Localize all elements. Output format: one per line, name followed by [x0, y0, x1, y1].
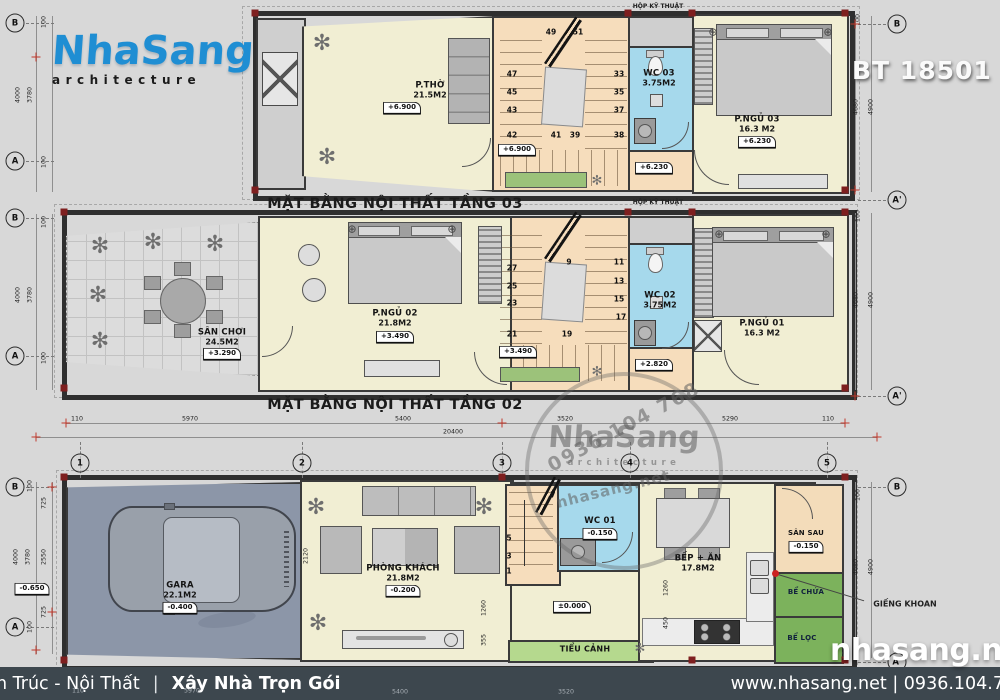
dim-item: 3780 — [27, 287, 34, 303]
sofa-icon — [362, 486, 476, 516]
brand-logo-subtext: architecture — [52, 73, 254, 87]
dashh-item — [26, 23, 54, 24]
dining-table-icon — [656, 498, 730, 548]
stair-landing — [541, 67, 587, 128]
bubble-item: A — [6, 152, 25, 171]
stair-flight-icon — [500, 40, 542, 150]
footer-left-text: n Trúc - Nội Thất — [0, 674, 140, 694]
room-label-wc01: WC 01 — [584, 516, 615, 526]
bubble-item: B — [888, 478, 907, 497]
level-tag: +3.290 — [203, 348, 241, 361]
dim-item: 100 — [41, 352, 48, 364]
bubble-item: A' — [888, 191, 907, 210]
cross-item — [62, 419, 71, 428]
dim-item: 4000 — [15, 87, 22, 103]
floor3-title: MẶT BẰNG NỘI THẤT TẦNG 03 — [267, 196, 522, 212]
room-label-sansau: SÂN SAU — [788, 529, 824, 537]
sink-icon — [750, 560, 769, 576]
chair-icon — [144, 276, 161, 290]
room-label-bed01: P.NGỦ 01 16.3 M2 — [739, 319, 784, 338]
vline-item — [36, 16, 37, 192]
dim-item: 100 — [27, 621, 34, 633]
bed-icon — [712, 227, 834, 317]
watermark-big-site: nhasang.net — [830, 633, 1000, 668]
elevator-shaft-icon — [262, 52, 298, 106]
dim-item: 100 — [41, 216, 48, 228]
dim-item: 5290 — [722, 416, 738, 423]
cross-item — [32, 646, 41, 655]
cross-item — [32, 433, 41, 442]
shower-icon — [634, 118, 656, 144]
stove-icon — [694, 620, 740, 644]
level-tag: -0.150 — [788, 541, 823, 554]
speaker-icon — [444, 633, 458, 647]
dim-item: 725 — [41, 606, 48, 618]
dim-item: 4900 — [868, 99, 875, 115]
armchair-icon — [320, 526, 362, 574]
stair-landing — [541, 262, 587, 323]
wardrobe-icon — [478, 226, 502, 304]
room-label-bed03: P.NGỦ 03 16.3 M2 — [734, 115, 779, 134]
dim-item: 110 — [71, 416, 83, 423]
stair-flight-icon — [585, 235, 627, 345]
vline-item — [871, 16, 872, 192]
level-tag: +6.900 — [383, 102, 421, 115]
level-tag: -0.150 — [582, 528, 617, 541]
watermark-brand-sub: architecture — [529, 458, 719, 468]
dim-item: 3780 — [27, 87, 34, 103]
dim-item: 3780 — [25, 549, 32, 565]
dim-item: 5400 — [395, 416, 411, 423]
bubble-item: A' — [888, 387, 907, 406]
room-label-ptho: P.THỜ 21.5M2 — [413, 81, 446, 100]
level-tag: -0.400 — [162, 602, 197, 615]
footer-bar: n Trúc - Nội Thất | Xây Nhà Trọn Gói www… — [0, 667, 1000, 700]
shower-icon — [634, 320, 656, 346]
sink-icon — [750, 578, 769, 594]
room-label-wc03: WC 03 3.75M2 — [642, 69, 675, 88]
dim-item: 20400 — [443, 429, 463, 436]
dashh-item — [858, 200, 886, 201]
room-label-gara: GARA 22.1M2 — [163, 581, 196, 600]
chair-icon — [174, 324, 191, 338]
chair-icon — [174, 262, 191, 276]
cross-item — [841, 419, 850, 428]
vline-item — [52, 482, 53, 654]
brand-logo-text: NhaSang — [51, 30, 256, 72]
dim-item: 4000 — [13, 549, 20, 565]
bubble-item: A — [6, 618, 25, 637]
vline-item — [36, 482, 37, 654]
floor3-duct-shaft — [628, 16, 696, 50]
footer-slogan: Xây Nhà Trọn Gói — [172, 674, 341, 694]
room-label-wc02: WC 02 3.75M2 — [643, 291, 676, 310]
dim-item: 3520 — [557, 416, 573, 423]
bubble-item: B — [6, 14, 25, 33]
level-tag: +3.490 — [376, 331, 414, 344]
room-label-khach: PHÒNG KHÁCH 21.8M2 — [366, 564, 439, 583]
dim-item: 100 — [41, 16, 48, 28]
level-tag: -0.200 — [385, 585, 420, 598]
dashh-item — [26, 487, 54, 488]
floor2-duct-label: HỘP KỸ THUẬT — [633, 199, 683, 206]
cross-item — [32, 53, 41, 62]
hline-item — [36, 437, 877, 438]
wardrobe-icon — [694, 28, 713, 105]
bubble-item: B — [6, 478, 25, 497]
cross-item — [498, 419, 507, 428]
planter-icon — [505, 172, 587, 188]
dim-item: 100 — [27, 480, 34, 492]
brand-logo: NhaSang architecture — [52, 30, 254, 87]
dim-item: 110 — [822, 416, 834, 423]
label-beloc: BỂ LỌC — [787, 634, 816, 642]
chair-icon — [206, 276, 223, 290]
room-label-bep: BẾP + ĂN 17.8M2 — [675, 554, 722, 573]
bed-icon — [716, 24, 832, 116]
vline-item — [52, 214, 53, 390]
altar-cabinet-icon — [448, 38, 490, 124]
dashh-item — [858, 24, 886, 25]
bubble-item: A — [6, 347, 25, 366]
chair-icon — [144, 310, 161, 324]
dim-item: 725 — [41, 497, 48, 509]
label-bechua: BỂ CHỨA — [788, 588, 824, 596]
dim-item: 4900 — [868, 292, 875, 308]
chair-icon — [206, 310, 223, 324]
dashh-item — [26, 218, 54, 219]
floor2-title: MẶT BẰNG NỘI THẤT TẦNG 02 — [267, 397, 522, 413]
bubble-item: B — [888, 15, 907, 34]
stair-flight-icon — [500, 235, 542, 345]
hline-item — [66, 423, 845, 424]
bench-icon — [738, 174, 828, 189]
watermark-brand: NhaSang — [528, 420, 720, 455]
toilet-icon — [648, 253, 663, 273]
dashh-item — [858, 396, 886, 397]
car-icon — [108, 506, 296, 612]
dim-item: 5970 — [182, 416, 198, 423]
stool-icon — [298, 244, 320, 266]
dim-item: 4900 — [868, 559, 875, 575]
dim-item: 100 — [41, 156, 48, 168]
floor3-duct-label: HỘP KỸ THUẬT — [633, 3, 683, 10]
level-tag: -0.650 — [14, 583, 49, 596]
label-gieng-khoan: GIẾNG KHOAN — [873, 600, 936, 609]
footer-separator: | — [153, 674, 159, 694]
washbasin-icon — [650, 94, 663, 107]
elevator-shaft-icon — [694, 320, 722, 352]
bed-icon — [348, 222, 462, 304]
room-label-sanchoi: SÂN CHƠI 24.5M2 — [198, 328, 246, 347]
dim-item: 2550 — [41, 549, 48, 565]
bench-icon — [364, 360, 440, 377]
dashh-item — [26, 161, 54, 162]
drawing-sheet: 1105970540035205290110204004000378010010… — [0, 0, 1000, 700]
bubble-item: B — [6, 209, 25, 228]
dashh-item — [26, 356, 54, 357]
cross-item — [873, 433, 882, 442]
vline-item — [871, 482, 872, 658]
level-tag: +2.820 — [635, 359, 673, 372]
dashh-item — [26, 627, 54, 628]
dashh-item — [858, 487, 886, 488]
vline-item — [871, 213, 872, 390]
wardrobe-icon — [694, 228, 714, 318]
well-point — [772, 570, 779, 577]
room-label-bed02: P.NGỦ 02 21.8M2 — [372, 309, 417, 328]
floor1-bechua — [774, 572, 844, 620]
stair-flight-icon — [585, 40, 627, 150]
stool-icon — [302, 278, 326, 302]
stair-direction-arrow — [524, 500, 525, 566]
shower-icon — [560, 538, 596, 566]
round-table-icon — [160, 278, 206, 324]
footer-contact: www.nhasang.net | 0936.104.7 — [731, 674, 1000, 694]
level-tag: +6.230 — [635, 162, 673, 175]
armchair-icon — [454, 526, 500, 574]
label-tieucanh: TIỂU CẢNH — [560, 645, 610, 654]
level-tag: ±0.000 — [553, 601, 591, 614]
coffee-table-icon — [372, 528, 438, 566]
tv-icon — [356, 636, 426, 640]
level-tag: +3.490 — [499, 346, 537, 359]
dim-item: 4000 — [15, 287, 22, 303]
project-code: BT 18501 — [852, 56, 992, 85]
planter-icon — [500, 367, 580, 382]
level-tag: +6.230 — [738, 136, 776, 149]
vline-item — [36, 214, 37, 390]
level-tag: +6.900 — [498, 144, 536, 157]
